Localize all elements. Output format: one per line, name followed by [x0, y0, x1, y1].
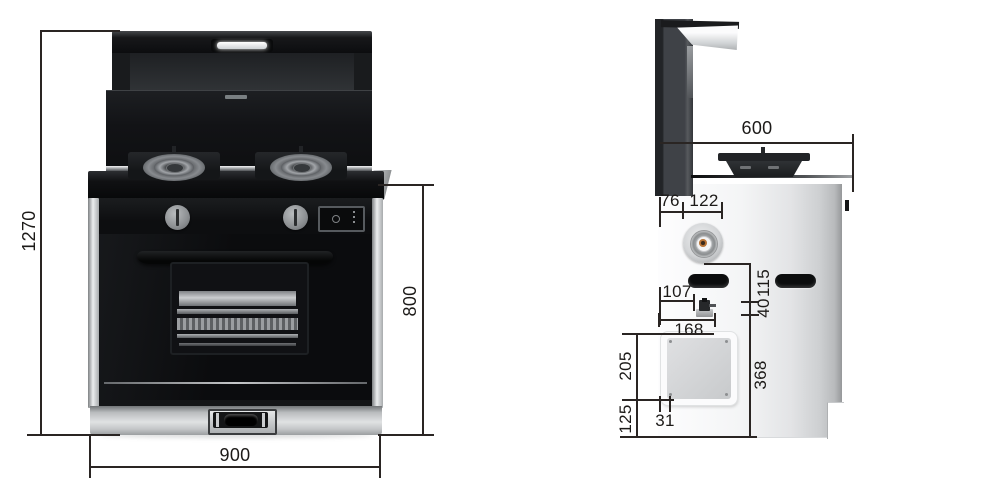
- dim-tick-31-b: [669, 396, 671, 412]
- dim-label-368: 368: [753, 353, 769, 397]
- dim-line-right-stack: [749, 264, 751, 438]
- dim-label-76: 76: [658, 193, 682, 209]
- base-vent-tick-right: [262, 413, 265, 427]
- hood-suction-cavity: [130, 53, 354, 91]
- dim-line-205: [636, 334, 638, 401]
- dim-line-total-height: [40, 31, 42, 435]
- oven-rack-grid: [177, 318, 298, 330]
- dim-tick-width-left: [89, 435, 91, 478]
- dim-tick-depth-right: [852, 134, 854, 192]
- access-panel-inner: [667, 338, 731, 399]
- mounting-tab: [845, 200, 849, 211]
- dim-label-body-height: 800: [400, 271, 420, 331]
- dim-label-125: 125: [618, 397, 634, 441]
- side-trim-left: [88, 198, 99, 408]
- dim-label-31: 31: [652, 412, 678, 430]
- hood-pillar-left: [112, 53, 130, 91]
- knob-left-marker: [176, 209, 179, 226]
- dim-tick-bottom-long: [620, 436, 757, 438]
- hood-pillar-right: [354, 53, 372, 91]
- dim-tick-168-left: [658, 313, 660, 327]
- hood-light-icon: [217, 42, 267, 49]
- vent-slot-right: [775, 274, 816, 288]
- column-highlight: [687, 46, 693, 98]
- display-vent-dots-icon: [353, 211, 355, 225]
- side-trim-right: [372, 198, 383, 408]
- dim-line-76-122: [660, 211, 722, 213]
- integrated-stove-dimension-diagram: 1270 800 900: [0, 0, 1000, 501]
- dim-tick-168-right: [714, 313, 716, 327]
- panel-screw-icon: [669, 340, 672, 343]
- door-accent-line: [104, 382, 367, 384]
- oven-rack-bar2: [177, 334, 298, 338]
- dim-line-125: [636, 401, 638, 438]
- dim-label-depth: 600: [725, 118, 789, 138]
- oven-rack-tray: [179, 291, 296, 306]
- display-indicator-icon: [332, 215, 340, 223]
- cabinet-bottom-notch: [827, 402, 844, 439]
- oven-window: [170, 262, 309, 355]
- panel-screw-icon: [725, 393, 728, 396]
- counter-slab-side: [691, 178, 853, 186]
- dim-tick-body-top: [378, 184, 434, 186]
- brand-logo: [225, 95, 247, 99]
- dim-tick-115-top: [704, 263, 751, 265]
- dim-label-total-height: 1270: [19, 201, 39, 261]
- base-vent-tick-left: [216, 413, 219, 427]
- dim-label-122: 122: [686, 193, 722, 209]
- base-vent-slot: [224, 414, 258, 426]
- dim-tick-width-right: [379, 435, 381, 478]
- dim-line-width: [90, 466, 381, 468]
- display-panel: [318, 206, 365, 232]
- dim-tick-31-a: [659, 396, 661, 412]
- dim-tick-total-top: [40, 30, 120, 32]
- dim-tick-205-top: [622, 333, 714, 335]
- dim-tick-body-bottom: [378, 434, 434, 436]
- glass-top-edge: [106, 90, 372, 91]
- dim-label-168: 168: [670, 322, 708, 338]
- oven-rack-bar: [177, 309, 298, 314]
- dim-label-107: 107: [659, 284, 695, 300]
- dim-tick-total-bottom: [27, 434, 120, 436]
- oven-rack-bar3: [179, 343, 296, 346]
- dim-label-205: 205: [618, 344, 634, 388]
- dim-line-body-height: [422, 185, 424, 435]
- dim-label-40: 40: [756, 293, 772, 323]
- panel-screw-icon: [725, 340, 728, 343]
- dim-label-width: 900: [204, 445, 266, 465]
- dim-line-depth: [660, 142, 853, 144]
- knob-right-marker: [294, 209, 297, 226]
